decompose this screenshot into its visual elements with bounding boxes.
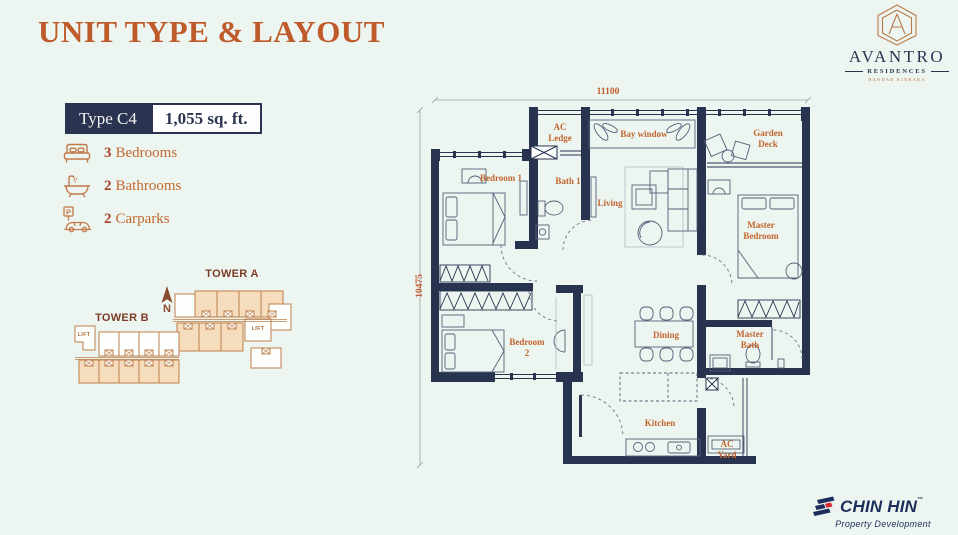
tower-key-plan: TOWER A TOWER B LIFT LIFT N <box>55 256 317 392</box>
feature-label: Bedrooms <box>116 145 178 161</box>
room-label-master-bedroom: Master Bedroom <box>721 220 801 241</box>
north-arrow-icon <box>162 286 173 303</box>
north-label: N <box>157 303 177 315</box>
towers-svg <box>55 256 317 392</box>
feature-count: 2 <box>104 211 112 227</box>
unit-area-badge: 1,055 sq. ft. <box>151 103 262 134</box>
avantro-logo: AVANTRO RESIDENCES BANDAR KINRARA <box>838 4 956 82</box>
room-label-kitchen: Kitchen <box>620 418 700 429</box>
room-label-bedroom2: Bedroom 2 <box>487 337 567 358</box>
brand-name: AVANTRO <box>838 47 956 67</box>
developer-tagline: Property Development <box>810 519 956 529</box>
brand-tagline: BANDAR KINRARA <box>838 77 956 82</box>
bed-icon <box>62 140 92 166</box>
dim-height-label: 10475 <box>415 246 425 326</box>
feature-label: Bathrooms <box>116 178 182 194</box>
tower-a-label: TOWER A <box>197 268 267 280</box>
dim-width-label: 11100 <box>548 87 668 97</box>
hexagon-logo-icon <box>874 4 920 46</box>
feature-count: 3 <box>104 145 112 161</box>
chinhin-logo: CHIN HIN™ Property Development <box>810 495 956 529</box>
feature-row-carparks: P 2Carparks <box>62 206 181 232</box>
room-label-bay-window: Bay window <box>584 129 704 140</box>
floorplan: 11100 10475 AC Ledge Bay window Garden D… <box>398 85 818 477</box>
lift-a-label: LIFT <box>245 326 271 332</box>
page-title: UNIT TYPE & LAYOUT <box>38 14 385 50</box>
lift-b-label: LIFT <box>72 332 96 338</box>
room-label-bath1: Bath 1 <box>538 176 598 187</box>
brand-residences: RESIDENCES <box>867 68 927 75</box>
developer-tm: ™ <box>917 497 923 503</box>
room-label-dining: Dining <box>626 330 706 341</box>
decorative-line <box>931 71 949 72</box>
room-label-living: Living <box>580 198 640 209</box>
unit-type-badge: Type C4 <box>65 103 151 134</box>
room-label-bedroom1: Bedroom 1 <box>451 173 551 184</box>
room-label-garden-deck: Garden Deck <box>728 128 808 149</box>
bath-icon <box>62 173 92 199</box>
feature-row-bathrooms: 2Bathrooms <box>62 173 181 199</box>
svg-text:P: P <box>66 207 71 216</box>
room-label-ac-ledge: AC Ledge <box>530 122 590 143</box>
feature-count: 2 <box>104 178 112 194</box>
developer-name: CHIN HIN <box>840 497 917 516</box>
walls-group <box>431 107 810 464</box>
room-label-ac-yard: AC Yard <box>697 439 757 460</box>
unit-type-area-badges: Type C4 1,055 sq. ft. <box>65 103 262 134</box>
feature-list: 3Bedrooms 2Bathrooms P <box>62 140 181 239</box>
tower-b-label: TOWER B <box>87 312 157 324</box>
chinhin-emblem-icon <box>810 495 836 519</box>
feature-label: Carparks <box>116 211 170 227</box>
room-label-master-bath: Master Bath <box>710 329 790 350</box>
decorative-line <box>845 71 863 72</box>
car-icon: P <box>62 205 92 233</box>
feature-row-bedrooms: 3Bedrooms <box>62 140 181 166</box>
wardrobe-hatches <box>440 265 800 318</box>
tower-a-units <box>173 291 291 368</box>
